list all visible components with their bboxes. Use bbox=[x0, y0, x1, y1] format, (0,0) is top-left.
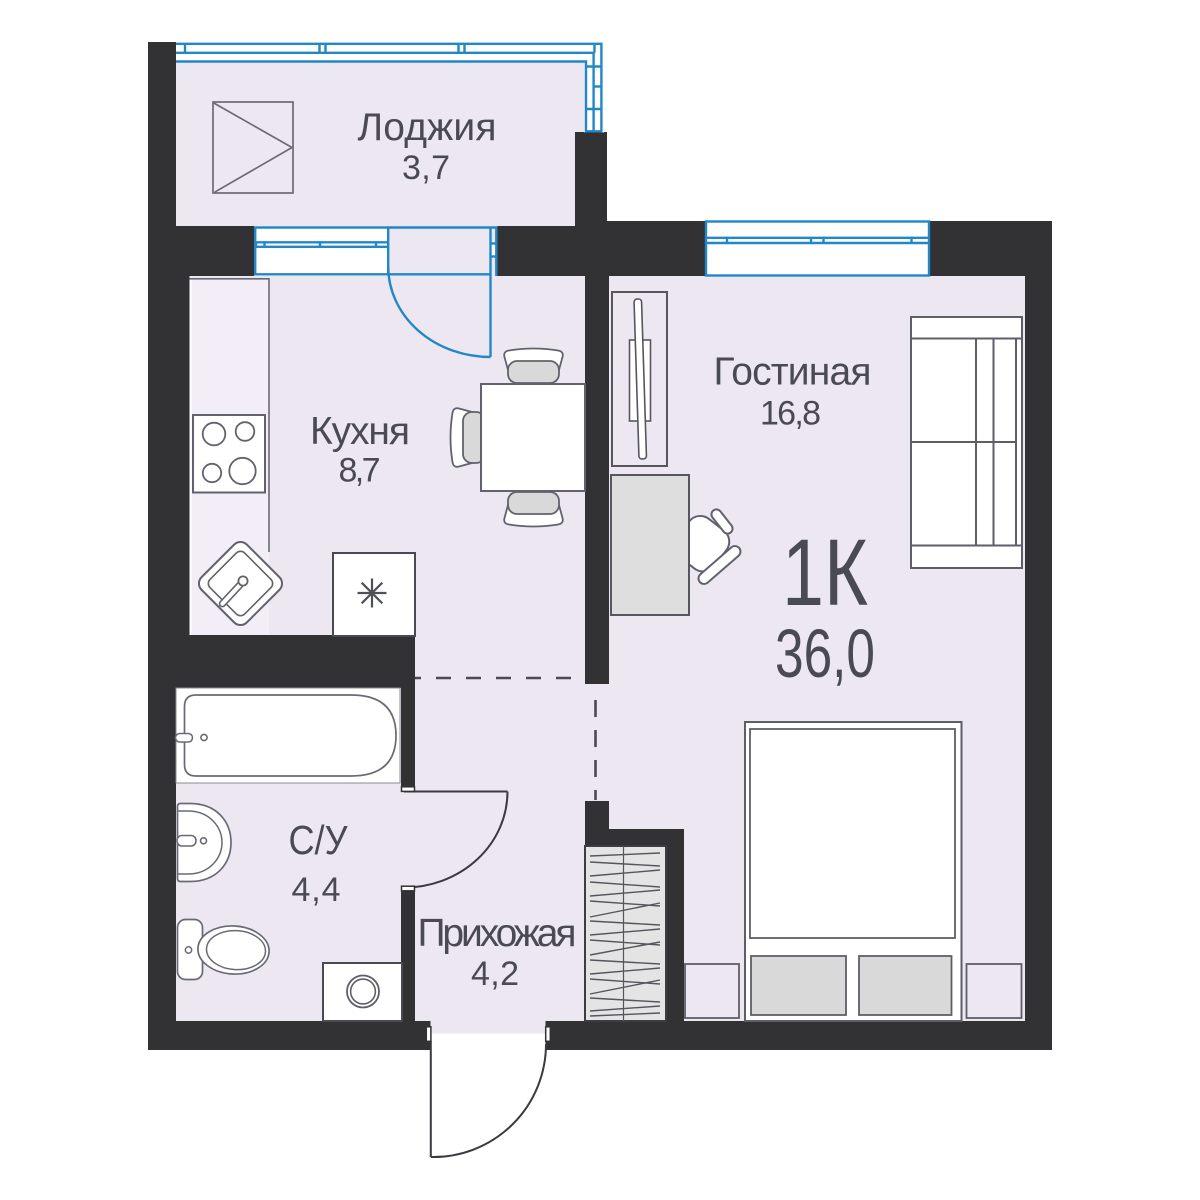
svg-text:Прихожая: Прихожая bbox=[418, 912, 577, 955]
svg-text:16,8: 16,8 bbox=[760, 395, 821, 433]
svg-text:1К: 1К bbox=[782, 520, 868, 626]
svg-text:36,0: 36,0 bbox=[775, 615, 875, 692]
svg-text:Кухня: Кухня bbox=[310, 410, 410, 453]
svg-text:8,7: 8,7 bbox=[339, 452, 381, 490]
svg-text:4,4: 4,4 bbox=[292, 871, 341, 909]
svg-text:3,7: 3,7 bbox=[402, 149, 450, 187]
svg-text:4,2: 4,2 bbox=[471, 955, 519, 993]
svg-text:Гостиная: Гостиная bbox=[714, 351, 872, 394]
svg-text:С/У: С/У bbox=[289, 817, 349, 863]
svg-text:Лоджия: Лоджия bbox=[358, 106, 497, 149]
